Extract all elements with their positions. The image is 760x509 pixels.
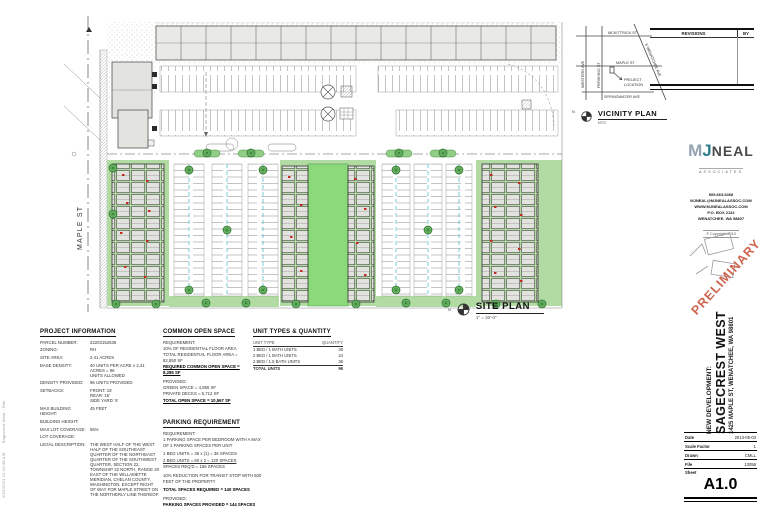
info-row: MAX LOT COVERAGE:55%	[40, 427, 160, 432]
parking-line: 2 BED UNITS = 60 x 2 = 120 SPACES	[163, 458, 263, 464]
vicinity-north-arrow-icon	[579, 109, 594, 124]
field-label: Drawn	[685, 453, 698, 458]
info-label: LOT COVERAGE:	[40, 434, 90, 439]
vicinity-street-bottom: SPRINGWATER AVE	[604, 95, 640, 99]
sheet-number-row: Sheet A1.0	[684, 468, 757, 495]
info-label: SITE AREA:	[40, 355, 90, 360]
vicinity-caption: N VICINITY PLAN NTS	[572, 109, 678, 125]
info-row: SITE AREA:2.41 ACRES	[40, 355, 160, 360]
info-value: 2.41 ACRES	[90, 355, 160, 360]
project-information-header: PROJECT INFORMATION	[40, 329, 116, 337]
maple-street: MAPLE ST	[64, 16, 107, 312]
north-arrow-icon	[455, 301, 472, 318]
field-value: 13056	[744, 462, 756, 467]
project-name: SAGECREST WEST	[714, 296, 728, 434]
parking-line: REQUIREMENT:	[163, 431, 263, 437]
site-plan-north-label: N	[448, 307, 451, 312]
field-value: 2013-05-03	[735, 435, 756, 440]
firm-block: MJNEAL ASSOCIATES 509.663.6468 MJNEAL@MJ…	[684, 142, 758, 240]
vicinity-title: VICINITY PLAN	[598, 109, 667, 120]
unit-type: TOTAL UNITS	[253, 365, 315, 372]
firm-contact: 509.663.6468 MJNEAL@MJNEALASSOC.COM WWW.…	[684, 192, 758, 222]
unit-types-section: UNIT TYPES & QUANTITY UNIT TYPE QUANTITY…	[253, 320, 343, 372]
info-label: ZONING:	[40, 347, 90, 352]
firm-city: WENATCHEE, WA 98807	[684, 216, 758, 222]
titleblock-bottom-rule	[684, 497, 757, 499]
project-address: 1425 MAPLE ST, WENATCHEE, WA 98801	[729, 296, 735, 434]
cos-line: REQUIREMENT:	[163, 340, 251, 346]
info-row: DENSITY PROVIDED:96 UNITS PROVIDED	[40, 380, 160, 385]
revisions-by-header: BY	[737, 30, 754, 37]
parking-line: 1 PARKING SPACE PER BEDROOM WITH A MAX O…	[163, 437, 263, 449]
common-open-space-section: COMMON OPEN SPACE REQUIREMENT: 10% OF RE…	[163, 320, 251, 404]
project-title-block: NEW DEVELOPMENT: SAGECREST WEST 1425 MAP…	[682, 296, 758, 434]
info-row: MAX BUILDING HEIGHT:45 FEET	[40, 406, 160, 416]
revisions-block: REVISIONS BY	[650, 28, 754, 90]
info-label: MAX LOT COVERAGE:	[40, 427, 90, 432]
project-type: NEW DEVELOPMENT:	[706, 296, 713, 434]
info-label: MAX BUILDING HEIGHT:	[40, 406, 90, 416]
info-label: BASE DENSITY:	[40, 363, 90, 378]
project-information-section: PROJECT INFORMATION PARCEL NUMBER:222031…	[40, 320, 160, 500]
site-plan-scale: 1" = 30'-0"	[476, 315, 544, 320]
field-row-scale-factor: Scale Factor 1	[684, 441, 757, 450]
project-location-marker	[610, 67, 614, 73]
info-value: THE WEST HALF OF THE WEST HALF OF THE SO…	[90, 442, 160, 497]
site-plan-drawing: MAPLE ST	[56, 14, 572, 316]
info-value	[90, 434, 160, 439]
field-label: Scale Factor	[685, 444, 710, 449]
cos-line: GREEN SPACE = 4,855 SF	[163, 385, 251, 391]
cos-line: REQUIRED COMMON OPEN SPACE = 8,285 SF	[163, 364, 251, 376]
cos-line: 10% OF RESIDENTIAL FLOOR AREA	[163, 346, 251, 352]
info-row: LOT COVERAGE:	[40, 434, 160, 439]
field-label: File	[685, 462, 692, 467]
firm-logo: MJNEAL	[684, 142, 758, 160]
unit-qty: 96	[315, 365, 343, 372]
logo-subtitle: ASSOCIATES	[699, 168, 743, 174]
project-location-label-2: LOCATION	[624, 83, 643, 87]
vicinity-street-left2: PERSHING ST	[597, 62, 601, 88]
maple-st-label: MAPLE ST	[77, 206, 84, 250]
info-value: FRONT: 15' REAR: 15' SIDE YARD: 5'	[90, 388, 160, 403]
revisions-column-divider	[737, 37, 738, 84]
field-row-date: Date 2013-05-03	[684, 432, 757, 441]
info-value: RH	[90, 347, 160, 352]
sheet-number: A1.0	[685, 476, 756, 494]
site-plan-title: SITE PLAN	[476, 301, 544, 314]
vicinity-street-left: WESTERN AVE	[581, 60, 585, 88]
field-row-file: File 13056	[684, 459, 757, 468]
unit-types-header: UNIT TYPES & QUANTITY	[253, 329, 331, 337]
plot-stamp-datetime: 2/15/2021 11:10:48 AM	[1, 453, 6, 498]
site-plan-svg: MAPLE ST	[56, 14, 572, 316]
vicinity-north-label: N	[572, 109, 575, 114]
site-plan-caption: N SITE PLAN 1" = 30'-0"	[448, 301, 544, 320]
project-location-label-1: PROJECT	[624, 78, 642, 82]
info-value: 45 FEET	[90, 406, 160, 416]
drawing-sheet: { "plot_stamp": { "datetime": "2/15/2021…	[0, 0, 760, 500]
logo-letter-m: M	[688, 141, 702, 160]
unit-row-total: TOTAL UNITS 96	[253, 365, 343, 372]
info-label: PARCEL NUMBER:	[40, 340, 90, 345]
info-value: 96 UNITS PROVIDED	[90, 380, 160, 385]
parking-line: PARKING SPACES PROVIDED = 144 SPACES	[163, 502, 263, 508]
info-row: ZONING:RH	[40, 347, 160, 352]
common-open-space-header: COMMON OPEN SPACE	[163, 329, 235, 337]
parking-line: TOTAL SPACES REQUIRED = 140 SPACES	[163, 487, 263, 493]
info-value: 40 UNITS PER ACRE x 2.41 ACRES = 96 UNIT…	[90, 363, 160, 378]
field-value: 1	[754, 444, 756, 449]
vicinity-street-middle: MAPLE ST	[616, 61, 635, 65]
logo-neal: NEAL	[712, 143, 754, 159]
field-label: Date	[685, 435, 694, 440]
plot-stamp: 2/15/2021 11:10:48 AM Sagecrest West - S…	[1, 368, 10, 498]
cos-line: PRIVATE DECKS = 5,712 SF	[163, 391, 251, 397]
vicinity-scale: NTS	[598, 120, 667, 125]
parking-header: PARKING REQUIREMENT	[163, 420, 240, 428]
unit-types-table: UNIT TYPE QUANTITY 1 BED / 1 BATH UNITS …	[253, 340, 343, 372]
cos-line: TOTAL OPEN SPACE = 10,567 SF	[163, 398, 251, 404]
info-row: PARCEL NUMBER:22203152535	[40, 340, 160, 345]
info-label: DENSITY PROVIDED:	[40, 380, 90, 385]
parking-line: SPACES REQ'D = 156 SPACES	[163, 464, 263, 470]
info-value	[90, 419, 160, 424]
parking-line: 1 BED UNITS = 36 x (1) = 36 SPACES	[163, 451, 263, 457]
info-value: 22203152535	[90, 340, 160, 345]
cos-line: TOTAL RESIDENTIAL FLOOR AREA = 82,850 SF	[163, 352, 251, 364]
parking-requirement-section: PARKING REQUIREMENT REQUIREMENT: 1 PARKI…	[163, 411, 263, 509]
cos-line: PROVIDED:	[163, 379, 251, 385]
info-label: SETBACKS:	[40, 388, 90, 403]
sheet-info-table: Date 2013-05-03 Scale Factor 1 Drawn CML…	[684, 432, 757, 502]
street-north-tick	[86, 27, 92, 32]
vicinity-street-top: MCKITTRICK ST	[608, 31, 638, 35]
parking-line: PROVIDED:	[163, 496, 263, 502]
left-entry-building	[112, 62, 157, 148]
titleblock-bottom-rule-2	[684, 501, 757, 502]
info-label: LEGAL DESCRIPTION:	[40, 442, 90, 497]
info-value: 55%	[90, 427, 160, 432]
field-value: CMLL	[745, 453, 756, 458]
info-row: LEGAL DESCRIPTION:THE WEST HALF OF THE W…	[40, 442, 160, 497]
sheet-label: Sheet	[685, 470, 696, 475]
info-row: SETBACKS:FRONT: 15' REAR: 15' SIDE YARD:…	[40, 388, 160, 403]
logo-letter-j: J	[702, 141, 711, 160]
revisions-header: REVISIONS	[650, 30, 737, 37]
field-row-drawn: Drawn CMLL	[684, 450, 757, 459]
info-row: BASE DENSITY:40 UNITS PER ACRE x 2.41 AC…	[40, 363, 160, 378]
parking-line: 10% REDUCTION FOR TRANSIT STOP WITH 500 …	[163, 473, 263, 485]
info-row: BUILDING HEIGHT:	[40, 419, 160, 424]
plot-stamp-file: Sagecrest West - Site	[1, 401, 6, 444]
revisions-underline	[650, 89, 754, 90]
info-label: BUILDING HEIGHT:	[40, 419, 90, 424]
